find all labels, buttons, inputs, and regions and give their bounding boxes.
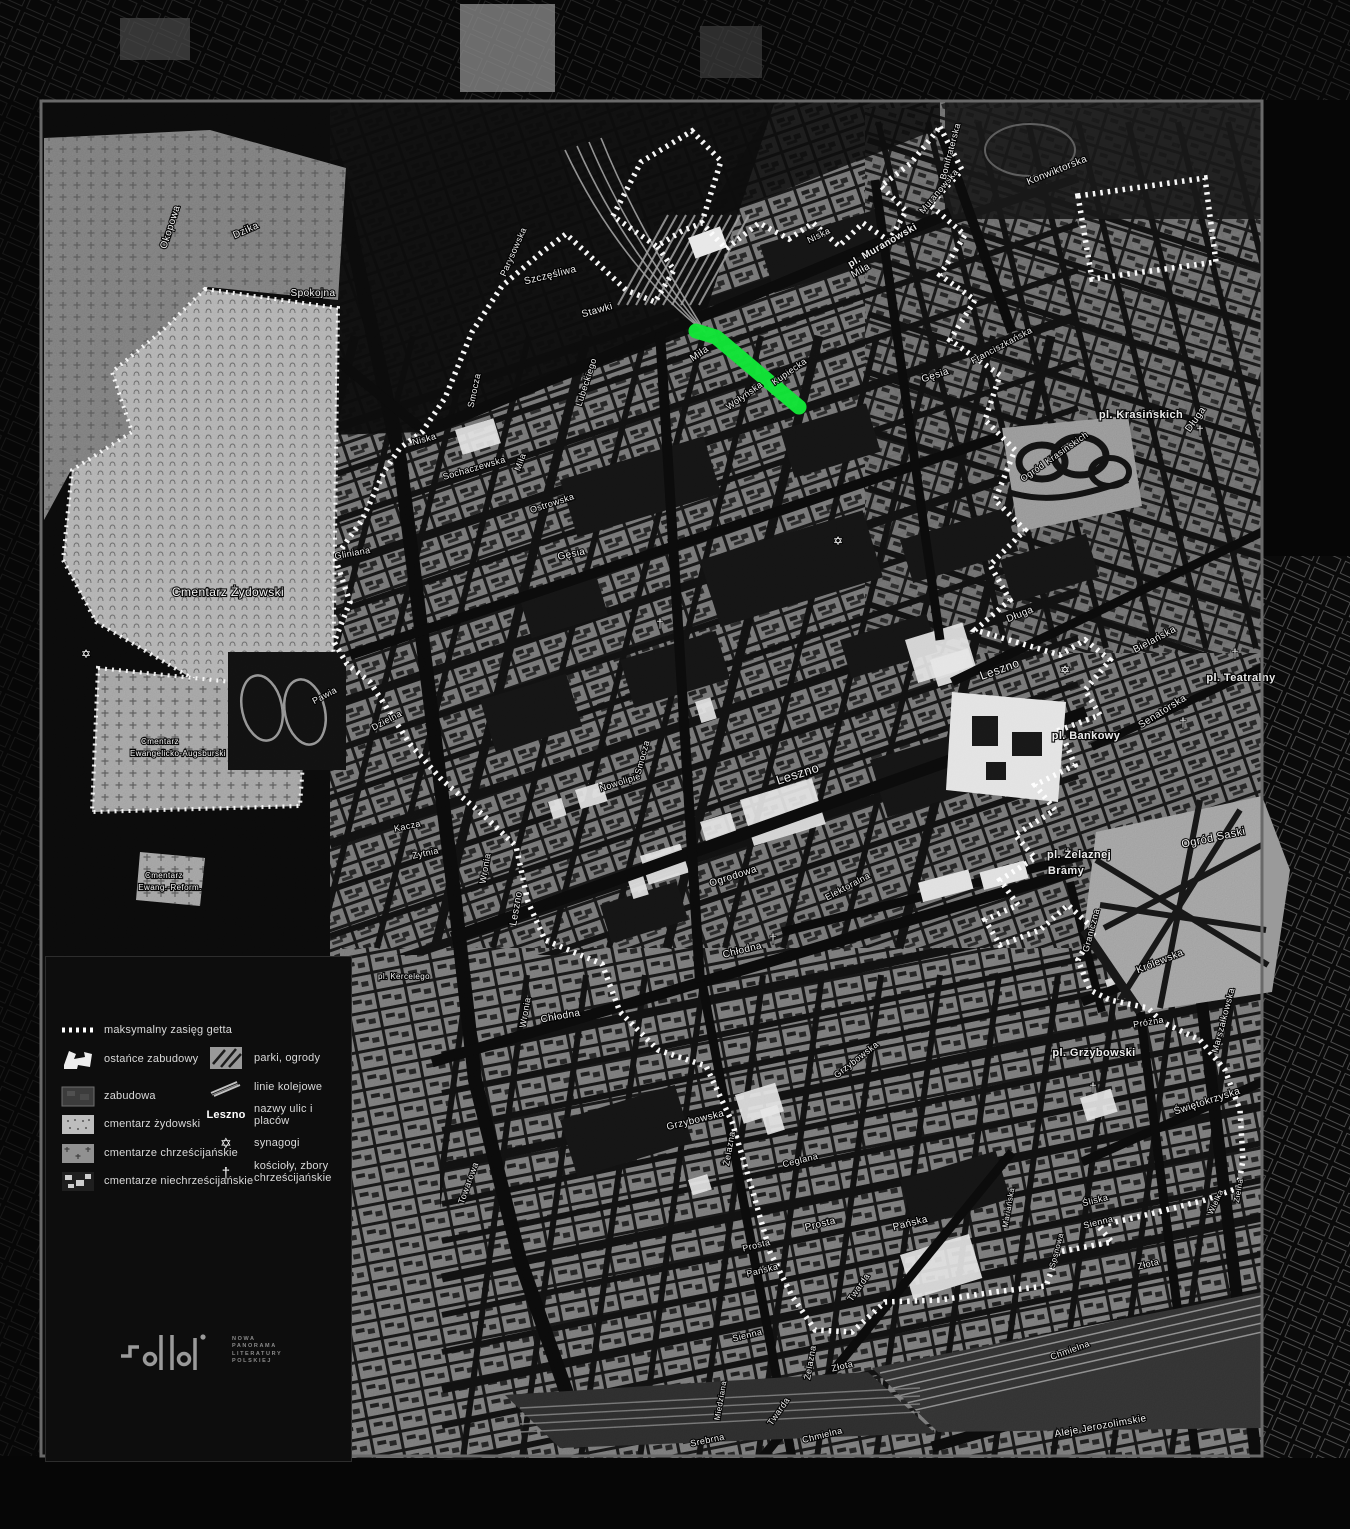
ghetto-swatch bbox=[58, 1025, 98, 1035]
rail-swatch bbox=[204, 1077, 248, 1097]
legend-item-ghetto: maksymalny zasięg getta bbox=[46, 1016, 351, 1044]
nplp-logo[interactable]: NOWAPANORAMALITERATURYPOLSKIEJ bbox=[118, 1328, 282, 1376]
legend-item-rail: linie kolejowe bbox=[46, 1073, 351, 1101]
logo-caption-line: POLSKIEJ bbox=[232, 1358, 282, 1365]
outer-rail-halls bbox=[460, 4, 555, 92]
logo-caption-line: LITERATURY bbox=[232, 1351, 282, 1358]
syn-swatch: ✡ bbox=[204, 1133, 248, 1153]
nplp-logo-caption: NOWAPANORAMALITERATURYPOLSKIEJ bbox=[232, 1336, 282, 1366]
outer-city-top bbox=[0, 0, 1350, 100]
outer-city-left bbox=[0, 100, 41, 1456]
nplp-logo-glyphs bbox=[118, 1328, 218, 1376]
legend-item-label: nazwy ulic i placów bbox=[254, 1103, 351, 1127]
church-swatch: † bbox=[204, 1162, 248, 1182]
legend-item-label: parki, ogrody bbox=[254, 1052, 320, 1064]
legend-item-label: kościoły, zbory chrześcijańskie bbox=[254, 1160, 332, 1184]
logo-caption-line: NOWA bbox=[232, 1336, 282, 1343]
legend-item-label: maksymalny zasięg getta bbox=[104, 1024, 232, 1036]
svg-text:✡: ✡ bbox=[220, 1135, 232, 1151]
legend-item-syn: ✡synagogi bbox=[46, 1129, 351, 1157]
legend-item-park: parki, ogrody bbox=[46, 1044, 351, 1072]
park-swatch bbox=[204, 1046, 248, 1070]
legend-item-church: †kościoły, zbory chrześcijańskie bbox=[46, 1158, 351, 1186]
legend-item-names: Lesznonazwy ulic i placów bbox=[46, 1101, 351, 1129]
svg-text:†: † bbox=[222, 1165, 231, 1182]
legend-item-label: linie kolejowe bbox=[254, 1081, 322, 1093]
ghetto-map-page: ✡✡✡†††††† OkopowaDzikaSpokojnaParysowska… bbox=[0, 0, 1350, 1529]
logo-caption-line: PANORAMA bbox=[232, 1343, 282, 1350]
outer-city-right bbox=[1263, 556, 1350, 1458]
outer-block bbox=[120, 18, 190, 60]
names-swatch: Leszno bbox=[204, 1109, 248, 1121]
outer-block bbox=[700, 26, 762, 78]
legend-item-label: synagogi bbox=[254, 1137, 300, 1149]
legend-panel: maksymalny zasięg gettaostańce zabudowyz… bbox=[45, 956, 352, 1462]
